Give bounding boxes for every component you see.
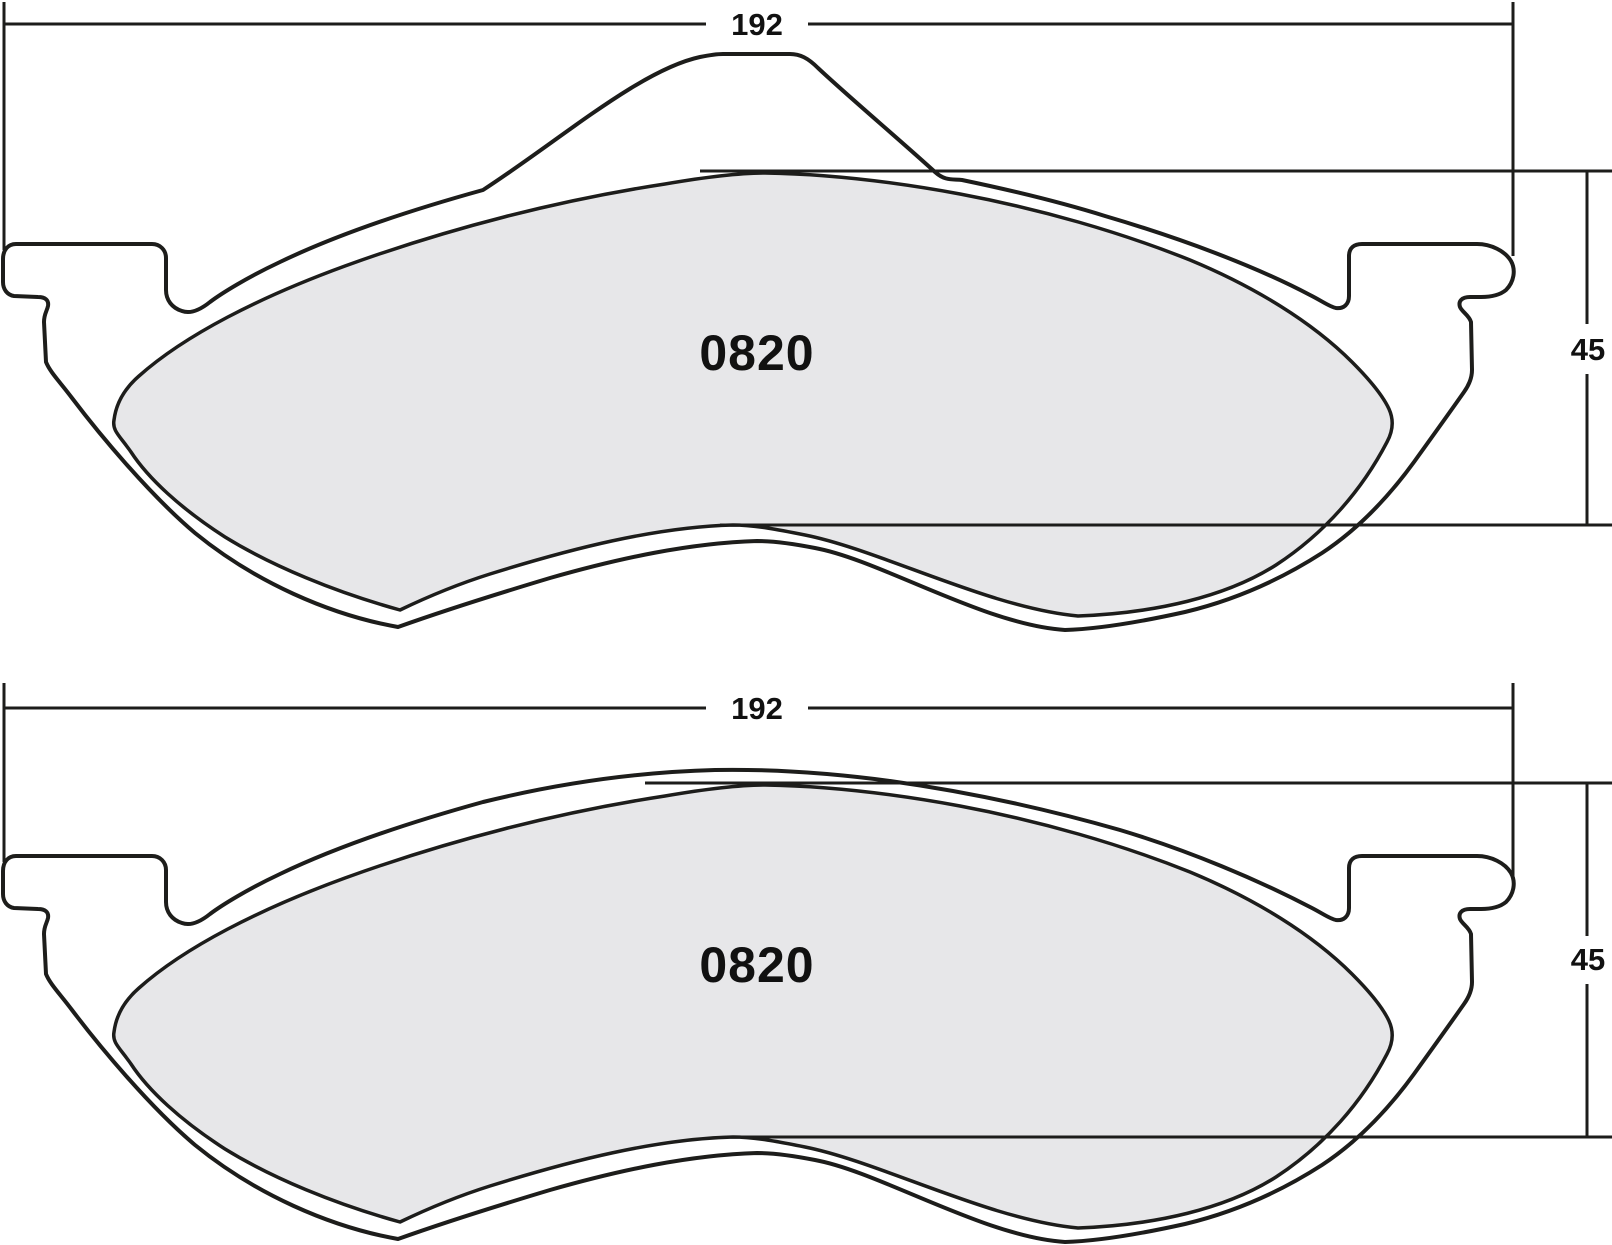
brake-pad-drawing: 192 45 0820 192 bbox=[0, 0, 1612, 1245]
pad-drawing-bottom: 192 45 0820 bbox=[3, 683, 1612, 1242]
height-dim-label-bottom-pad: 45 bbox=[1571, 942, 1605, 977]
technical-drawing-canvas: 192 45 0820 192 bbox=[0, 0, 1612, 1245]
width-dim-label-top-pad: 192 bbox=[731, 7, 783, 42]
width-dim-label-bottom-pad: 192 bbox=[731, 691, 783, 726]
pad-drawing-top: 192 45 0820 bbox=[3, 2, 1612, 630]
friction-material-top bbox=[114, 173, 1393, 616]
height-dim-label-top-pad: 45 bbox=[1571, 332, 1605, 367]
part-number-label-top-pad: 0820 bbox=[699, 325, 814, 381]
friction-material-bottom bbox=[114, 785, 1393, 1228]
part-number-label-bottom-pad: 0820 bbox=[699, 937, 814, 993]
